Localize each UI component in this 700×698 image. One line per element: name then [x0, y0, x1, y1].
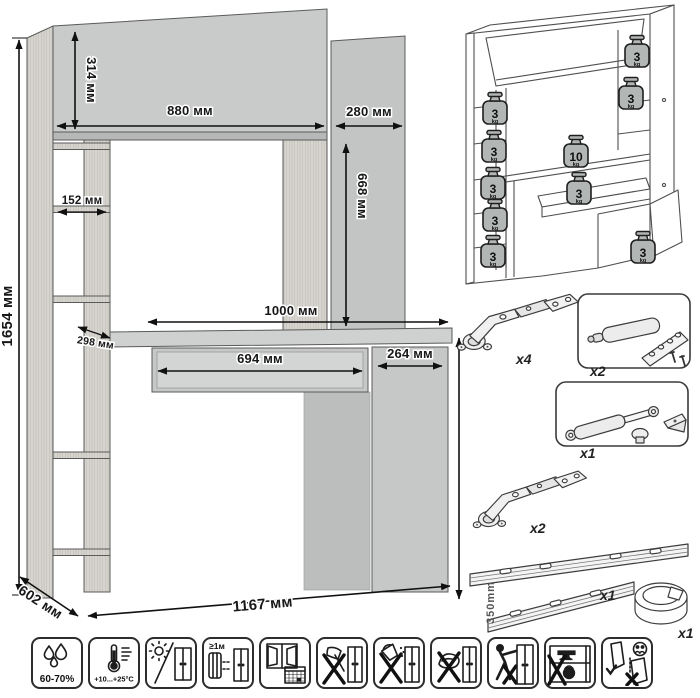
svg-text:kg: kg	[640, 258, 646, 264]
care-icon-temperature: +10...+25°C	[88, 637, 140, 689]
dim-hutch-section-height: 314 мм	[84, 57, 99, 103]
panel-check-icon	[607, 642, 624, 674]
weight-badge-drawer: 3 kg	[567, 173, 591, 206]
load-capacity-schematic: 3 kg 3 kg 3 kg 3 kg 3 kg 3 kg 3 kg 10 kg…	[450, 0, 700, 300]
svg-text:60-70%: 60-70%	[40, 674, 75, 685]
svg-text:x1: x1	[677, 625, 694, 640]
slash-icon	[155, 643, 173, 683]
hardware-hinge-x2: x2	[469, 470, 590, 536]
weight-badge-left-shelf-4: 3 kg	[483, 200, 507, 233]
dim-drawer-width: 694 мм	[237, 351, 283, 366]
two-person-badge-icon	[634, 643, 647, 656]
dim-hutch-width: 880 мм	[167, 103, 213, 118]
dim-top-cabinet-height: 668 мм	[355, 173, 370, 219]
weight-badge-left-shelf-2: 3 kg	[482, 131, 506, 164]
svg-text:x2: x2	[589, 363, 606, 379]
svg-text:x2: x2	[529, 520, 546, 536]
care-icon-no-leaning	[487, 637, 539, 689]
hardware-cable-grommet-x1: x1	[635, 583, 694, 640]
svg-text:+10...+25°C: +10...+25°C	[94, 675, 134, 684]
care-icon-no-liquids	[373, 637, 425, 689]
hardware-gas-lift-x1: x1	[556, 382, 688, 461]
furniture-dimension-diagram: 1654 мм 314 мм 880 мм 280 мм 668 мм 152 …	[0, 0, 700, 698]
kettlebell-icon	[563, 666, 574, 679]
care-icon-carry-dont-drag	[601, 637, 653, 689]
hardware-door-damper-x2: x2	[578, 294, 690, 379]
cabinet-icon	[175, 648, 191, 680]
thermometer-icon	[109, 645, 132, 672]
dim-total-width: 1167 мм	[232, 593, 294, 615]
dim-desktop-width: 1000 мм	[264, 303, 317, 318]
dim-total-height: 1654 мм	[0, 285, 16, 346]
weight-badge-left-shelf-1: 3 kg	[483, 93, 507, 126]
person-icon	[497, 645, 516, 679]
cross-icon	[381, 654, 401, 682]
weight-badge-left-shelf-3: 3 kg	[481, 168, 505, 201]
calendar-icon	[285, 667, 305, 683]
dim-top-cabinet-width: 280 мм	[346, 104, 392, 119]
cross-icon	[324, 655, 344, 683]
care-icon-no-sunlight	[145, 637, 197, 689]
cross-icon	[504, 666, 516, 683]
svg-text:kg: kg	[492, 119, 498, 125]
hardware-hinge-x4: x4	[455, 294, 581, 367]
svg-text:≥1м: ≥1м	[209, 641, 225, 651]
cabinet-icon	[463, 647, 476, 682]
weight-badge-left-shelf-5: 3 kg	[481, 236, 505, 269]
weight-badge-desktop: 10 kg	[564, 136, 588, 169]
water-drops-icon	[44, 644, 66, 667]
cabinet-icon	[405, 647, 419, 682]
hardware-list: x4 x2	[450, 290, 700, 640]
svg-text:kg: kg	[576, 199, 582, 205]
weight-badge-right-shelf: 3 kg	[619, 78, 643, 111]
svg-text:kg: kg	[573, 162, 579, 168]
radiator-icon	[209, 653, 221, 678]
dim-pedestal-width: 264 мм	[387, 346, 433, 361]
cabinet-icon	[234, 649, 248, 681]
svg-text:x1: x1	[579, 445, 596, 461]
cross-icon	[627, 674, 637, 685]
svg-text:350mm: 350mm	[485, 581, 497, 624]
svg-text:kg: kg	[628, 104, 634, 110]
svg-text:kg: kg	[634, 62, 640, 68]
dim-shelf-width: 152 мм	[62, 195, 103, 207]
svg-text:kg: kg	[492, 226, 498, 232]
care-icon-no-overload	[544, 637, 596, 689]
cabinet-icon	[517, 645, 533, 684]
care-icon-row: 60-70% +10...+25°C	[31, 637, 671, 689]
svg-text:x4: x4	[515, 351, 532, 367]
open-window-icon	[267, 644, 297, 668]
cabinet-icon	[348, 647, 362, 682]
care-icon-humidity: 60-70%	[31, 637, 83, 689]
care-icon-ventilation	[259, 637, 311, 689]
svg-text:kg: kg	[490, 262, 496, 268]
care-icon-no-wet-cleaning	[430, 637, 482, 689]
care-icon-heater-distance: ≥1м	[202, 637, 254, 689]
desk-dimension-drawing: 1654 мм 314 мм 880 мм 280 мм 668 мм 152 …	[0, 0, 468, 650]
cross-icon	[549, 656, 565, 684]
svg-text:kg: kg	[491, 157, 497, 163]
distance-arrows-icon	[223, 662, 231, 669]
care-icon-no-sharp-objects	[316, 637, 368, 689]
svg-text:x1: x1	[599, 587, 616, 603]
